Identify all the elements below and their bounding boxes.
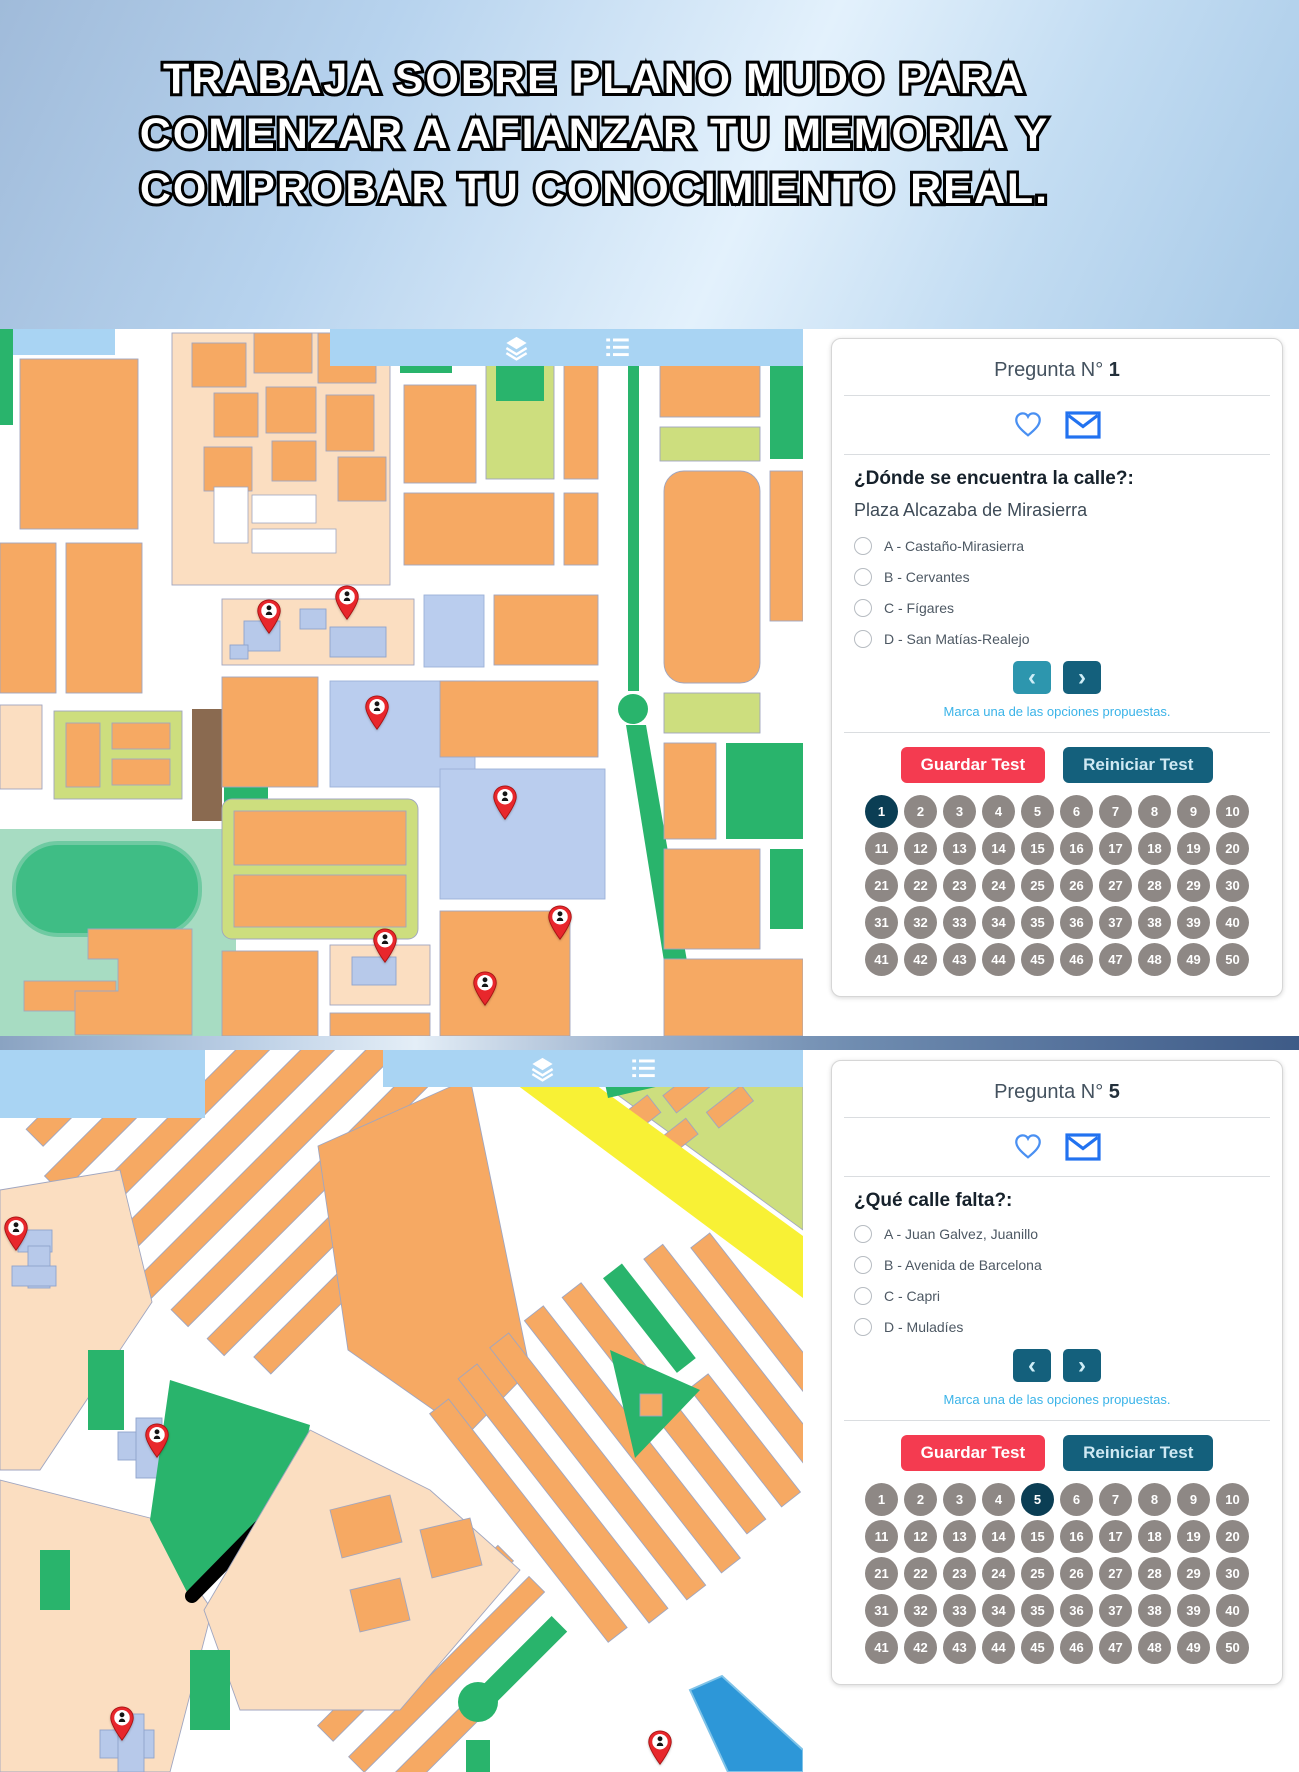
question-number-46[interactable]: 46 bbox=[1060, 943, 1093, 976]
option-label: D - San Matías-Realejo bbox=[884, 631, 1030, 647]
question-number-24[interactable]: 24 bbox=[982, 869, 1015, 902]
question-number-42[interactable]: 42 bbox=[904, 1631, 937, 1664]
question-number-6[interactable]: 6 bbox=[1060, 795, 1093, 828]
question-number-20[interactable]: 20 bbox=[1216, 832, 1249, 865]
question-number-19[interactable]: 19 bbox=[1177, 832, 1210, 865]
question-number-15[interactable]: 15 bbox=[1021, 832, 1054, 865]
divider-line bbox=[844, 1420, 1270, 1421]
question-number-38[interactable]: 38 bbox=[1138, 1594, 1171, 1627]
question-number-17[interactable]: 17 bbox=[1099, 1520, 1132, 1553]
question-number-32[interactable]: 32 bbox=[904, 906, 937, 939]
question-number-16[interactable]: 16 bbox=[1060, 832, 1093, 865]
hero-banner: TRABAJA SOBRE PLANO MUDO PARA COMENZAR A… bbox=[0, 0, 1299, 329]
question-number-48[interactable]: 48 bbox=[1138, 943, 1171, 976]
question-card-5: Pregunta N° 5 ¿Qué calle falta?: bbox=[831, 1060, 1283, 1685]
question-number-28[interactable]: 28 bbox=[1138, 1557, 1171, 1590]
radio-icon[interactable] bbox=[854, 630, 872, 648]
option-a[interactable]: A - Castaño-Mirasierra bbox=[854, 537, 1260, 555]
map-marker-icon[interactable] bbox=[3, 1216, 30, 1252]
question-number-8[interactable]: 8 bbox=[1138, 1483, 1171, 1516]
question-number-39[interactable]: 39 bbox=[1177, 906, 1210, 939]
question-nav: ‹ › bbox=[852, 1349, 1262, 1382]
question-number-42[interactable]: 42 bbox=[904, 943, 937, 976]
headline-line: COMENZAR A AFIANZAR TU MEMORIA Y bbox=[40, 107, 1149, 162]
question-number-47[interactable]: 47 bbox=[1099, 943, 1132, 976]
question-number-27[interactable]: 27 bbox=[1099, 869, 1132, 902]
radio-icon[interactable] bbox=[854, 1256, 872, 1274]
save-test-button[interactable]: Guardar Test bbox=[901, 1435, 1046, 1471]
question-nav: ‹ › bbox=[852, 661, 1262, 694]
option-a[interactable]: A - Juan Galvez, Juanillo bbox=[854, 1225, 1260, 1243]
question-number-26[interactable]: 26 bbox=[1060, 869, 1093, 902]
option-label: B - Cervantes bbox=[884, 569, 970, 585]
next-question-button[interactable]: › bbox=[1063, 661, 1101, 694]
question-number-40[interactable]: 40 bbox=[1216, 906, 1249, 939]
question-number-35[interactable]: 35 bbox=[1021, 1594, 1054, 1627]
divider-line bbox=[844, 395, 1270, 396]
list-icon[interactable] bbox=[630, 1055, 657, 1082]
divider-line bbox=[844, 1176, 1270, 1177]
question-number-18[interactable]: 18 bbox=[1138, 832, 1171, 865]
map-marker-icon[interactable] bbox=[371, 928, 398, 964]
divider-line bbox=[844, 454, 1270, 455]
question-text: ¿Qué calle falta?: bbox=[854, 1190, 1260, 1212]
question-number-30[interactable]: 30 bbox=[1216, 1557, 1249, 1590]
question-number-46[interactable]: 46 bbox=[1060, 1631, 1093, 1664]
question-number-26[interactable]: 26 bbox=[1060, 1557, 1093, 1590]
question-number-11[interactable]: 11 bbox=[865, 832, 898, 865]
question-number-48[interactable]: 48 bbox=[1138, 1631, 1171, 1664]
section-question-1: Pregunta N° 1 ¿Dónde se encuentr bbox=[0, 329, 1299, 1036]
radio-icon[interactable] bbox=[854, 568, 872, 586]
question-number-5[interactable]: 5 bbox=[1021, 1483, 1054, 1516]
next-question-button[interactable]: › bbox=[1063, 1349, 1101, 1382]
radio-icon[interactable] bbox=[854, 1287, 872, 1305]
question-number-4[interactable]: 4 bbox=[982, 1483, 1015, 1516]
question-number-22[interactable]: 22 bbox=[904, 869, 937, 902]
question-number-40[interactable]: 40 bbox=[1216, 1594, 1249, 1627]
question-number-7[interactable]: 7 bbox=[1099, 795, 1132, 828]
question-number-50[interactable]: 50 bbox=[1216, 943, 1249, 976]
question-number: 5 bbox=[1109, 1081, 1120, 1103]
map-toolbar bbox=[330, 329, 803, 366]
city-map-top[interactable] bbox=[0, 329, 803, 1036]
map-marker-icon[interactable] bbox=[546, 905, 573, 941]
question-number-37[interactable]: 37 bbox=[1099, 906, 1132, 939]
question-number-23[interactable]: 23 bbox=[943, 1557, 976, 1590]
map-marker-icon[interactable] bbox=[492, 785, 519, 821]
question-number-28[interactable]: 28 bbox=[1138, 869, 1171, 902]
headline-line: COMPROBAR TU CONOCIMIENTO REAL. bbox=[40, 162, 1149, 217]
map-marker-icon[interactable] bbox=[363, 695, 390, 731]
divider-line bbox=[844, 732, 1270, 733]
list-icon[interactable] bbox=[604, 334, 631, 361]
question-number-12[interactable]: 12 bbox=[904, 832, 937, 865]
question-number-18[interactable]: 18 bbox=[1138, 1520, 1171, 1553]
envelope-icon[interactable] bbox=[1065, 411, 1101, 439]
question-number-45[interactable]: 45 bbox=[1021, 1631, 1054, 1664]
question-number-45[interactable]: 45 bbox=[1021, 943, 1054, 976]
map-marker-icon[interactable] bbox=[144, 1423, 171, 1459]
question-number-50[interactable]: 50 bbox=[1216, 1631, 1249, 1664]
reset-test-button[interactable]: Reiniciar Test bbox=[1063, 747, 1213, 783]
question-number-43[interactable]: 43 bbox=[943, 943, 976, 976]
section-question-5: Pregunta N° 5 ¿Qué calle falta?: bbox=[0, 1050, 1299, 1772]
hint-text: Marca una de las opciones propuestas. bbox=[852, 1392, 1262, 1407]
option-label: C - Capri bbox=[884, 1288, 940, 1304]
divider-line bbox=[844, 1117, 1270, 1118]
question-number-49[interactable]: 49 bbox=[1177, 943, 1210, 976]
prev-question-button[interactable]: ‹ bbox=[1013, 1349, 1051, 1382]
map-illustration bbox=[0, 1050, 803, 1772]
question-number-2[interactable]: 2 bbox=[904, 795, 937, 828]
question-number-30[interactable]: 30 bbox=[1216, 869, 1249, 902]
map-toolbar bbox=[383, 1050, 803, 1087]
section-divider bbox=[0, 1036, 1299, 1050]
question-number-9[interactable]: 9 bbox=[1177, 795, 1210, 828]
question-number-grid: 1234567891011121314151617181920212223242… bbox=[861, 1483, 1253, 1664]
street-name: Plaza Alcazaba de Mirasierra bbox=[854, 500, 1260, 521]
question-number-14[interactable]: 14 bbox=[982, 832, 1015, 865]
question-number-29[interactable]: 29 bbox=[1177, 869, 1210, 902]
map-illustration bbox=[0, 329, 803, 1036]
question-title-prefix: Pregunta N° bbox=[994, 359, 1103, 381]
question-number-41[interactable]: 41 bbox=[865, 1631, 898, 1664]
option-c[interactable]: C - Fígares bbox=[854, 599, 1260, 617]
question-number-15[interactable]: 15 bbox=[1021, 1520, 1054, 1553]
card-icon-row bbox=[852, 409, 1262, 441]
question-number-21[interactable]: 21 bbox=[865, 869, 898, 902]
question-number-5[interactable]: 5 bbox=[1021, 795, 1054, 828]
question-number-35[interactable]: 35 bbox=[1021, 906, 1054, 939]
radio-icon[interactable] bbox=[854, 1225, 872, 1243]
option-b[interactable]: B - Cervantes bbox=[854, 568, 1260, 586]
question-number-29[interactable]: 29 bbox=[1177, 1557, 1210, 1590]
question-number-19[interactable]: 19 bbox=[1177, 1520, 1210, 1553]
envelope-icon[interactable] bbox=[1065, 1133, 1101, 1161]
map-marker-icon[interactable] bbox=[256, 599, 283, 635]
options-list: A - Castaño-Mirasierra B - Cervantes C -… bbox=[852, 537, 1262, 648]
question-number-34[interactable]: 34 bbox=[982, 1594, 1015, 1627]
question-number-13[interactable]: 13 bbox=[943, 1520, 976, 1553]
question-number-16[interactable]: 16 bbox=[1060, 1520, 1093, 1553]
question-number-47[interactable]: 47 bbox=[1099, 1631, 1132, 1664]
question-number-36[interactable]: 36 bbox=[1060, 1594, 1093, 1627]
heart-icon[interactable] bbox=[1013, 1132, 1043, 1162]
question-number-10[interactable]: 10 bbox=[1216, 1483, 1249, 1516]
question-number-36[interactable]: 36 bbox=[1060, 906, 1093, 939]
reset-test-button[interactable]: Reiniciar Test bbox=[1063, 1435, 1213, 1471]
options-list: A - Juan Galvez, Juanillo B - Avenida de… bbox=[852, 1225, 1262, 1336]
question-text: ¿Dónde se encuentra la calle?: bbox=[854, 468, 1260, 490]
question-title-prefix: Pregunta N° bbox=[994, 1081, 1103, 1103]
question-number-41[interactable]: 41 bbox=[865, 943, 898, 976]
question-number-44[interactable]: 44 bbox=[982, 943, 1015, 976]
question-number-37[interactable]: 37 bbox=[1099, 1594, 1132, 1627]
question-number-14[interactable]: 14 bbox=[982, 1520, 1015, 1553]
question-number-43[interactable]: 43 bbox=[943, 1631, 976, 1664]
option-d[interactable]: D - Muladíes bbox=[854, 1318, 1260, 1336]
option-label: B - Avenida de Barcelona bbox=[884, 1257, 1042, 1273]
question-number-6[interactable]: 6 bbox=[1060, 1483, 1093, 1516]
question-title: Pregunta N° 1 bbox=[852, 359, 1262, 382]
question-number-grid: 1234567891011121314151617181920212223242… bbox=[861, 795, 1253, 976]
question-number-34[interactable]: 34 bbox=[982, 906, 1015, 939]
map-marker-icon[interactable] bbox=[647, 1730, 674, 1766]
question-number-39[interactable]: 39 bbox=[1177, 1594, 1210, 1627]
question-number-23[interactable]: 23 bbox=[943, 869, 976, 902]
question-number-22[interactable]: 22 bbox=[904, 1557, 937, 1590]
question-card-1: Pregunta N° 1 ¿Dónde se encuentr bbox=[831, 338, 1283, 997]
question-number-24[interactable]: 24 bbox=[982, 1557, 1015, 1590]
city-map-bottom[interactable] bbox=[0, 1050, 803, 1772]
question-number-32[interactable]: 32 bbox=[904, 1594, 937, 1627]
save-test-button[interactable]: Guardar Test bbox=[901, 747, 1046, 783]
question-number-17[interactable]: 17 bbox=[1099, 832, 1132, 865]
hint-text: Marca una de las opciones propuestas. bbox=[852, 704, 1262, 719]
option-c[interactable]: C - Capri bbox=[854, 1287, 1260, 1305]
headline: TRABAJA SOBRE PLANO MUDO PARA COMENZAR A… bbox=[0, 0, 1299, 217]
prev-question-button[interactable]: ‹ bbox=[1013, 661, 1051, 694]
question-number-49[interactable]: 49 bbox=[1177, 1631, 1210, 1664]
question-number-11[interactable]: 11 bbox=[865, 1520, 898, 1553]
option-label: A - Juan Galvez, Juanillo bbox=[884, 1226, 1038, 1242]
radio-icon[interactable] bbox=[854, 537, 872, 555]
headline-line: TRABAJA SOBRE PLANO MUDO PARA bbox=[40, 52, 1149, 107]
question-number-10[interactable]: 10 bbox=[1216, 795, 1249, 828]
question-number-1[interactable]: 1 bbox=[865, 1483, 898, 1516]
heart-icon[interactable] bbox=[1013, 410, 1043, 440]
question-number-8[interactable]: 8 bbox=[1138, 795, 1171, 828]
card-actions: Guardar Test Reiniciar Test bbox=[852, 747, 1262, 783]
question-title: Pregunta N° 5 bbox=[852, 1081, 1262, 1104]
question-number-3[interactable]: 3 bbox=[943, 795, 976, 828]
question-number-33[interactable]: 33 bbox=[943, 906, 976, 939]
question-number-3[interactable]: 3 bbox=[943, 1483, 976, 1516]
question-number-31[interactable]: 31 bbox=[865, 906, 898, 939]
option-label: A - Castaño-Mirasierra bbox=[884, 538, 1024, 554]
map-marker-icon[interactable] bbox=[109, 1706, 136, 1742]
map-marker-icon[interactable] bbox=[333, 585, 360, 621]
question-number-7[interactable]: 7 bbox=[1099, 1483, 1132, 1516]
question-number-38[interactable]: 38 bbox=[1138, 906, 1171, 939]
question-number-44[interactable]: 44 bbox=[982, 1631, 1015, 1664]
question-number-4[interactable]: 4 bbox=[982, 795, 1015, 828]
card-actions: Guardar Test Reiniciar Test bbox=[852, 1435, 1262, 1471]
card-icon-row bbox=[852, 1131, 1262, 1163]
option-label: C - Fígares bbox=[884, 600, 954, 616]
question-number-21[interactable]: 21 bbox=[865, 1557, 898, 1590]
radio-icon[interactable] bbox=[854, 1318, 872, 1336]
question-number-31[interactable]: 31 bbox=[865, 1594, 898, 1627]
question-number: 1 bbox=[1109, 359, 1120, 381]
question-number-25[interactable]: 25 bbox=[1021, 1557, 1054, 1590]
page: TRABAJA SOBRE PLANO MUDO PARA COMENZAR A… bbox=[0, 0, 1299, 1772]
option-label: D - Muladíes bbox=[884, 1319, 963, 1335]
map-marker-icon[interactable] bbox=[472, 971, 499, 1007]
layers-icon[interactable] bbox=[529, 1055, 556, 1082]
question-number-2[interactable]: 2 bbox=[904, 1483, 937, 1516]
layers-icon[interactable] bbox=[503, 334, 530, 361]
question-number-20[interactable]: 20 bbox=[1216, 1520, 1249, 1553]
option-b[interactable]: B - Avenida de Barcelona bbox=[854, 1256, 1260, 1274]
question-number-27[interactable]: 27 bbox=[1099, 1557, 1132, 1590]
question-number-25[interactable]: 25 bbox=[1021, 869, 1054, 902]
question-number-12[interactable]: 12 bbox=[904, 1520, 937, 1553]
option-d[interactable]: D - San Matías-Realejo bbox=[854, 630, 1260, 648]
question-number-9[interactable]: 9 bbox=[1177, 1483, 1210, 1516]
question-number-13[interactable]: 13 bbox=[943, 832, 976, 865]
question-number-33[interactable]: 33 bbox=[943, 1594, 976, 1627]
question-number-1[interactable]: 1 bbox=[865, 795, 898, 828]
radio-icon[interactable] bbox=[854, 599, 872, 617]
